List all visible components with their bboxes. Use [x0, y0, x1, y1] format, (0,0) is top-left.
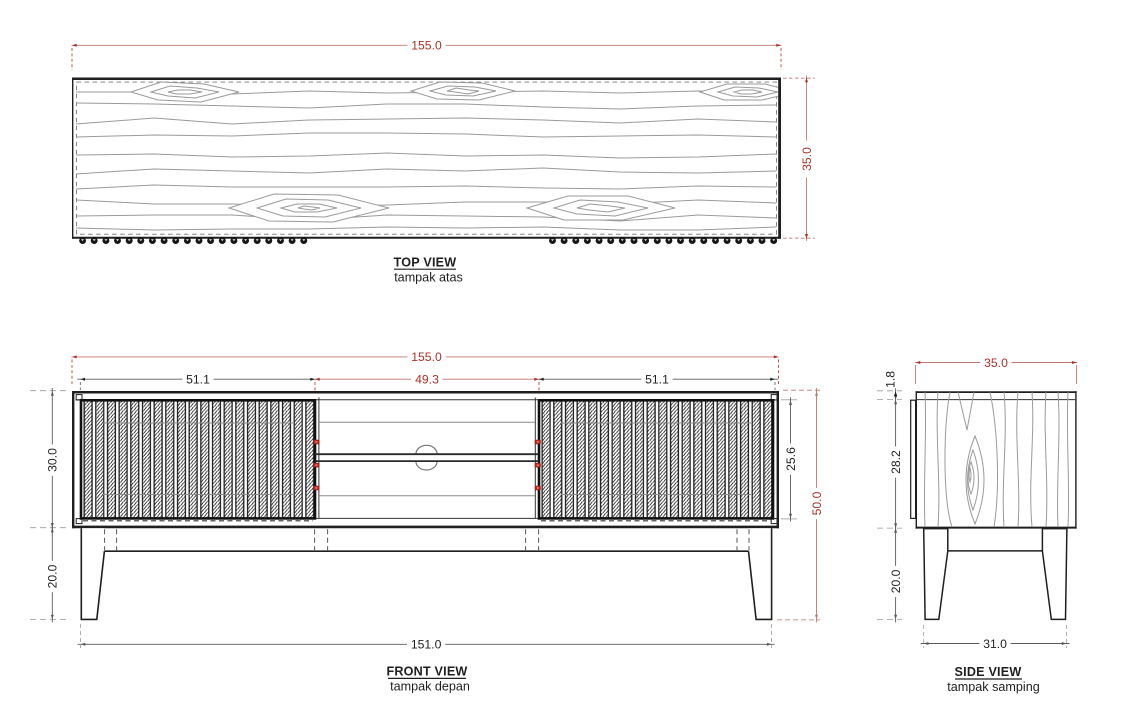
svg-text:31.0: 31.0	[983, 637, 1007, 651]
svg-text:51.1: 51.1	[645, 373, 669, 387]
svg-text:tampak depan: tampak depan	[390, 680, 470, 694]
svg-text:51.1: 51.1	[186, 373, 210, 387]
svg-text:50.0: 50.0	[810, 491, 824, 515]
svg-text:1.8: 1.8	[884, 371, 898, 388]
svg-text:FRONT VIEW: FRONT VIEW	[386, 664, 467, 678]
svg-text:20.0: 20.0	[46, 564, 60, 588]
svg-text:TOP VIEW: TOP VIEW	[394, 255, 457, 269]
svg-text:49.3: 49.3	[415, 373, 439, 387]
svg-text:35.0: 35.0	[984, 356, 1008, 370]
svg-text:155.0: 155.0	[411, 39, 442, 53]
svg-text:28.2: 28.2	[889, 450, 903, 474]
svg-text:20.0: 20.0	[889, 569, 903, 593]
svg-text:30.0: 30.0	[46, 448, 60, 472]
svg-text:tampak samping: tampak samping	[947, 680, 1039, 694]
svg-text:155.0: 155.0	[411, 350, 442, 364]
svg-text:151.0: 151.0	[411, 638, 442, 652]
svg-text:tampak atas: tampak atas	[394, 270, 463, 284]
svg-text:35.0: 35.0	[800, 147, 814, 171]
svg-text:25.6: 25.6	[784, 447, 798, 471]
svg-text:SIDE VIEW: SIDE VIEW	[955, 665, 1022, 679]
